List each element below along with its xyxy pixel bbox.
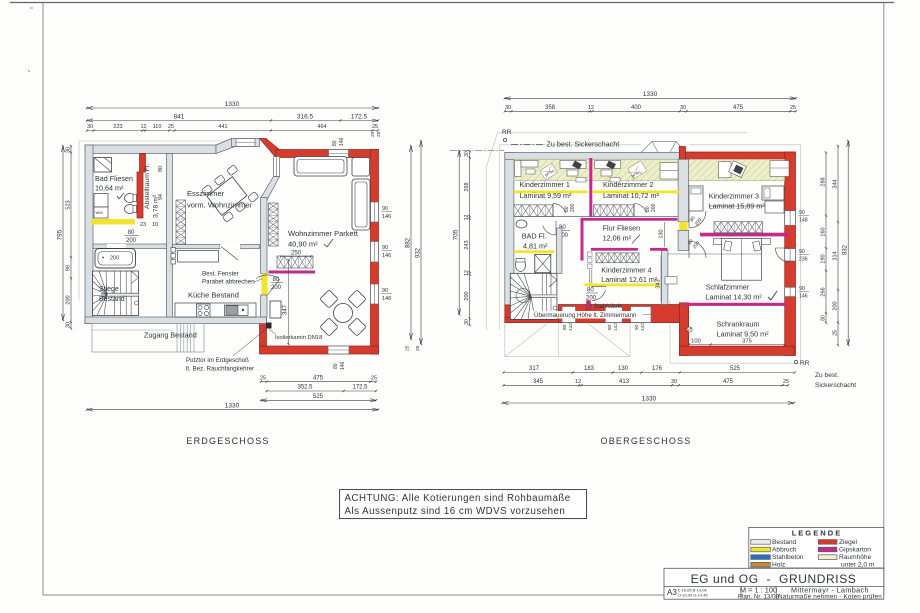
- svg-text:142: 142: [613, 323, 619, 331]
- svg-text:90: 90: [799, 249, 805, 255]
- svg-text:266: 266: [821, 287, 827, 296]
- svg-text:ACHTUNG: Alle Kotierungen sind: ACHTUNG: Alle Kotierungen sind Rohbaumaß…: [345, 493, 571, 504]
- svg-text:12: 12: [464, 270, 470, 276]
- svg-text:Schrankraum: Schrankraum: [717, 320, 760, 329]
- svg-text:Küche Bestand: Küche Bestand: [188, 291, 239, 300]
- svg-text:441: 441: [218, 124, 227, 130]
- svg-text:358: 358: [545, 105, 556, 111]
- svg-text:90: 90: [799, 286, 805, 292]
- svg-text:25: 25: [415, 345, 421, 351]
- svg-text:Isolierkamin DN18: Isolierkamin DN18: [275, 335, 322, 341]
- svg-text:90: 90: [382, 288, 388, 294]
- svg-text:94: 94: [158, 194, 164, 200]
- svg-text:Kinderzimmer 1: Kinderzimmer 1: [520, 180, 570, 189]
- svg-text:25: 25: [260, 375, 266, 381]
- svg-text:30: 30: [505, 105, 511, 111]
- svg-text:25: 25: [790, 105, 796, 111]
- svg-text:Abbruch: Abbruch: [772, 546, 797, 553]
- svg-text:Laminat 12,61 m²: Laminat 12,61 m²: [601, 275, 658, 284]
- svg-text:40,90 m²: 40,90 m²: [288, 240, 318, 249]
- svg-text:25: 25: [783, 379, 789, 385]
- svg-text:Holz: Holz: [772, 562, 785, 569]
- svg-text:90: 90: [382, 206, 388, 212]
- svg-text:Übermauerung Höhe lt. Zimmerma: Übermauerung Höhe lt. Zimmermann: [534, 312, 637, 319]
- svg-text:190: 190: [821, 254, 827, 263]
- svg-text:30: 30: [66, 322, 72, 328]
- svg-text:Bestand: Bestand: [772, 539, 797, 546]
- svg-text:525: 525: [313, 394, 324, 400]
- svg-text:Esszimmer: Esszimmer: [187, 189, 225, 198]
- svg-text:832: 832: [843, 244, 849, 255]
- svg-text:96: 96: [66, 265, 72, 271]
- svg-text:Best. Fenster: Best. Fenster: [202, 271, 239, 278]
- svg-text:130: 130: [618, 366, 629, 372]
- svg-text:12: 12: [140, 124, 146, 130]
- svg-text:146: 146: [799, 294, 808, 300]
- svg-text:lt. Bez. Rauchfangkehrer: lt. Bez. Rauchfangkehrer: [186, 366, 254, 373]
- svg-text:314: 314: [833, 251, 839, 260]
- svg-text:142: 142: [640, 323, 646, 331]
- svg-text:Kinderzimmer 4: Kinderzimmer 4: [601, 266, 651, 275]
- svg-text:25: 25: [376, 131, 382, 137]
- svg-text:Laminat 10,72 m²: Laminat 10,72 m²: [603, 191, 660, 200]
- svg-text:25: 25: [372, 124, 378, 130]
- svg-text:347: 347: [283, 304, 289, 315]
- svg-text:90: 90: [799, 210, 805, 216]
- svg-text:80: 80: [128, 230, 135, 236]
- svg-text:288: 288: [821, 177, 827, 186]
- svg-text:30: 30: [464, 319, 470, 325]
- svg-text:1330: 1330: [225, 402, 240, 409]
- svg-text:12,06 m²: 12,06 m²: [603, 234, 632, 243]
- svg-text:343: 343: [656, 279, 662, 288]
- svg-text:525: 525: [730, 366, 741, 372]
- svg-text:23: 23: [140, 222, 146, 228]
- svg-text:345: 345: [533, 379, 544, 385]
- svg-text:80: 80: [332, 140, 338, 146]
- svg-text:882: 882: [406, 237, 412, 248]
- svg-text:Als Aussenputz sind 16 cm WDVS: Als Aussenputz sind 16 cm WDVS vorzusehe…: [345, 506, 566, 517]
- svg-text:250: 250: [291, 251, 302, 257]
- svg-text:unter 2,0 m: unter 2,0 m: [841, 562, 875, 569]
- svg-text:Gipskarton: Gipskarton: [839, 546, 871, 553]
- svg-text:Kinderzimmer 3: Kinderzimmer 3: [709, 192, 759, 201]
- svg-text:100: 100: [691, 339, 701, 345]
- svg-text:130: 130: [659, 229, 665, 238]
- svg-text:A3: A3: [667, 588, 677, 597]
- svg-text:20: 20: [370, 131, 376, 137]
- svg-text:Zugang Bestand: Zugang Bestand: [144, 331, 197, 340]
- svg-text:90: 90: [634, 324, 640, 330]
- svg-text:OBERGESCHOSS: OBERGESCHOSS: [601, 436, 692, 446]
- svg-text:Laminat 14,30 m²: Laminat 14,30 m²: [706, 293, 763, 302]
- svg-text:200: 200: [126, 238, 137, 244]
- svg-text:223: 223: [113, 124, 122, 130]
- svg-text:Stahlbeton: Stahlbeton: [772, 554, 804, 561]
- svg-text:Raumhöhe: Raumhöhe: [839, 554, 872, 561]
- svg-text:183: 183: [584, 366, 595, 372]
- svg-text:146: 146: [382, 296, 391, 302]
- svg-text:200: 200: [464, 291, 470, 300]
- svg-text:80: 80: [821, 315, 827, 321]
- svg-text:Plan. Nr. 13/08: Plan. Nr. 13/08: [738, 593, 779, 600]
- svg-text:WM: WM: [96, 210, 103, 215]
- svg-text:1330: 1330: [642, 396, 657, 403]
- svg-text:Stiege: Stiege: [99, 286, 119, 293]
- svg-text:80: 80: [607, 324, 613, 330]
- svg-text:80: 80: [158, 166, 164, 172]
- svg-text:Sickerschacht: Sickerschacht: [815, 382, 856, 389]
- svg-text:200: 200: [651, 203, 657, 212]
- svg-text:12: 12: [588, 105, 594, 111]
- svg-text:25: 25: [168, 124, 174, 130]
- svg-text:Schlafzimmer: Schlafzimmer: [706, 283, 750, 292]
- svg-text:475: 475: [723, 379, 734, 385]
- svg-text:176: 176: [652, 366, 663, 372]
- svg-text:110: 110: [153, 124, 162, 130]
- svg-text:80: 80: [587, 288, 594, 294]
- svg-text:Flur Fliesen: Flur Fliesen: [603, 224, 641, 233]
- svg-text:Zu best.: Zu best.: [815, 372, 839, 379]
- svg-text:523: 523: [66, 200, 72, 209]
- svg-text:705: 705: [453, 229, 460, 240]
- svg-text:Abstellraum Fl.: Abstellraum Fl.: [144, 164, 151, 209]
- svg-text:90: 90: [382, 245, 388, 251]
- svg-text:475: 475: [733, 105, 744, 111]
- svg-text:Parabet abbrechen: Parabet abbrechen: [202, 279, 255, 286]
- svg-text:352.5: 352.5: [297, 385, 313, 391]
- svg-text:Ziegel: Ziegel: [839, 539, 857, 546]
- svg-text:146: 146: [382, 253, 391, 259]
- svg-text:vorm. Wohnzimmer: vorm. Wohnzimmer: [187, 201, 252, 210]
- svg-text:146: 146: [382, 214, 391, 220]
- svg-text:236: 236: [799, 257, 808, 263]
- svg-text:80: 80: [273, 277, 280, 283]
- svg-text:200: 200: [833, 301, 839, 310]
- svg-text:Wohnzimmer Parkett: Wohnzimmer Parkett: [288, 229, 359, 238]
- svg-text:12: 12: [464, 215, 470, 221]
- svg-text:344: 344: [833, 179, 839, 188]
- svg-text:160: 160: [821, 227, 827, 236]
- svg-text:30: 30: [671, 379, 677, 385]
- svg-text:Laminat 9,50 m²: Laminat 9,50 m²: [717, 330, 770, 339]
- svg-text:932: 932: [416, 247, 422, 258]
- svg-text:464: 464: [317, 124, 326, 130]
- svg-text:375: 375: [742, 339, 752, 345]
- svg-text:30: 30: [680, 105, 686, 111]
- svg-text:BAD Fl.: BAD Fl.: [522, 232, 547, 241]
- svg-text:200: 200: [271, 285, 282, 291]
- svg-text:Laminat 9,59 m²: Laminat 9,59 m²: [520, 191, 573, 200]
- svg-text:413: 413: [619, 379, 630, 385]
- svg-text:200: 200: [570, 203, 576, 212]
- svg-text:1330: 1330: [225, 101, 240, 108]
- svg-text:RR: RR: [800, 360, 810, 367]
- svg-text:25: 25: [371, 375, 377, 381]
- svg-text:10,64 m²: 10,64 m²: [95, 184, 124, 193]
- svg-text:30: 30: [87, 124, 93, 130]
- svg-text:146: 146: [340, 361, 346, 370]
- svg-text:Putztor im Erdgeschoß: Putztor im Erdgeschoß: [186, 357, 249, 364]
- svg-text:146: 146: [339, 137, 345, 146]
- svg-text:25: 25: [405, 345, 411, 351]
- svg-text:243: 243: [464, 240, 470, 249]
- svg-text:841: 841: [174, 113, 185, 120]
- svg-text:25: 25: [833, 330, 839, 336]
- svg-text:Bestand: Bestand: [99, 296, 125, 303]
- svg-text:U-10,00 U-14,46: U-10,00 U-14,46: [678, 593, 708, 598]
- svg-text:4,81 m²: 4,81 m²: [523, 242, 548, 251]
- svg-text:Naturmaße nehmen - Koten prüfe: Naturmaße nehmen - Koten prüfen: [778, 593, 882, 600]
- svg-text:30: 30: [66, 147, 72, 153]
- svg-text:30: 30: [464, 151, 470, 157]
- svg-text:148: 148: [799, 218, 808, 224]
- svg-text:80: 80: [333, 363, 339, 369]
- svg-text:80: 80: [562, 324, 568, 330]
- svg-text:172.5: 172.5: [351, 113, 368, 120]
- svg-text:400: 400: [631, 105, 642, 111]
- svg-text:795: 795: [57, 229, 64, 240]
- svg-text:316.5: 316.5: [297, 113, 314, 120]
- svg-text:Bad Fliesen: Bad Fliesen: [95, 174, 133, 183]
- svg-text:142: 142: [568, 323, 574, 331]
- svg-text:268: 268: [464, 182, 470, 191]
- svg-text:ERDGESCHOSS: ERDGESCHOSS: [186, 436, 269, 446]
- svg-text:172.5: 172.5: [352, 385, 368, 391]
- svg-text:200: 200: [66, 295, 72, 304]
- svg-text:EG und OG - GRUNDRISS: EG und OG - GRUNDRISS: [691, 572, 857, 586]
- svg-text:317: 317: [529, 366, 540, 372]
- svg-text:Stahlsäule: Stahlsäule: [594, 303, 623, 310]
- svg-text:475: 475: [313, 375, 324, 381]
- svg-text:1330: 1330: [643, 91, 658, 98]
- svg-text:RR: RR: [502, 129, 512, 136]
- svg-text:200: 200: [110, 256, 119, 262]
- svg-text:12: 12: [575, 379, 581, 385]
- svg-text:Zu best. Sickerschacht: Zu best. Sickerschacht: [547, 140, 620, 149]
- svg-text:10: 10: [152, 222, 158, 228]
- svg-text:L E G E N D E: L E G E N D E: [792, 529, 841, 538]
